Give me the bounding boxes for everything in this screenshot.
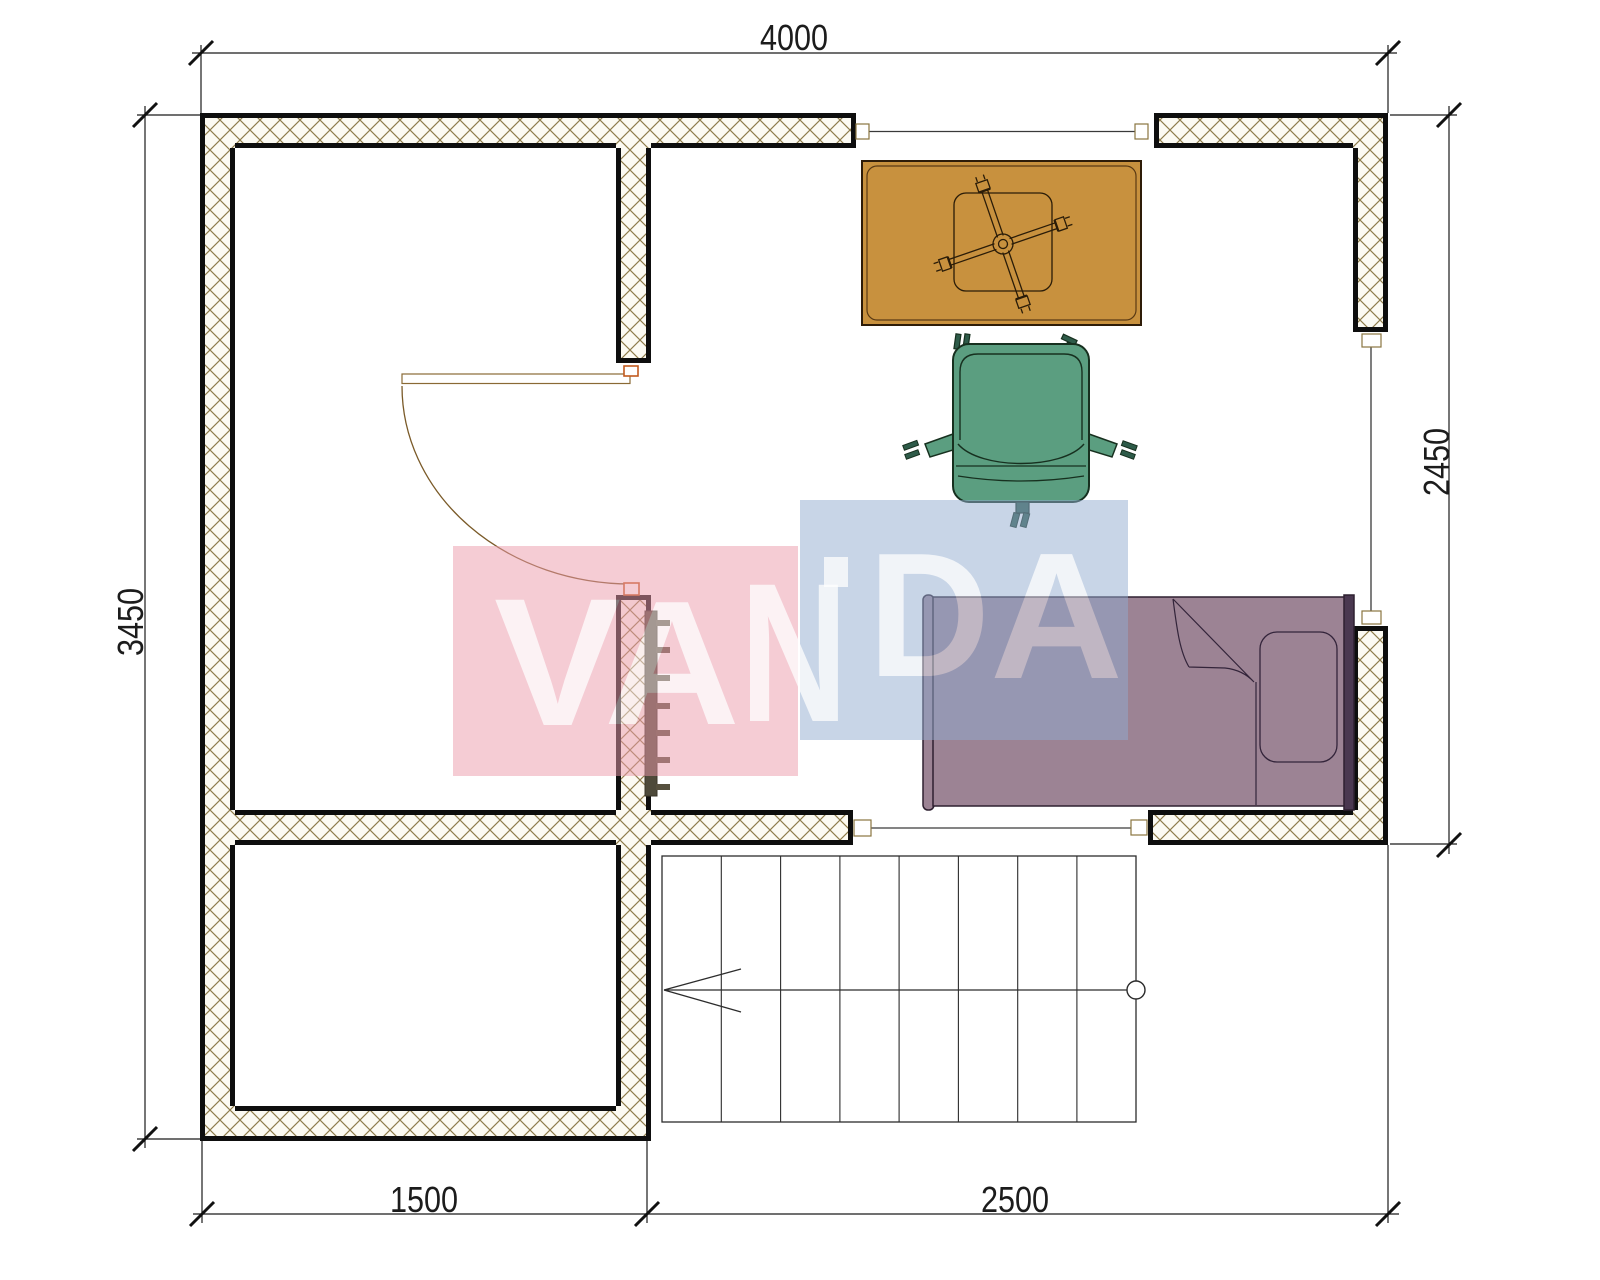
svg-text:3450: 3450 [112, 588, 152, 656]
svg-text:2450: 2450 [1418, 428, 1458, 496]
svg-text:V: V [494, 560, 621, 764]
svg-text:4000: 4000 [760, 19, 828, 59]
svg-text:D: D [868, 516, 990, 714]
svg-text:2500: 2500 [981, 1181, 1049, 1221]
svg-text:1500: 1500 [390, 1181, 458, 1221]
svg-text:A: A [990, 516, 1123, 717]
svg-text:A: A [604, 564, 740, 762]
